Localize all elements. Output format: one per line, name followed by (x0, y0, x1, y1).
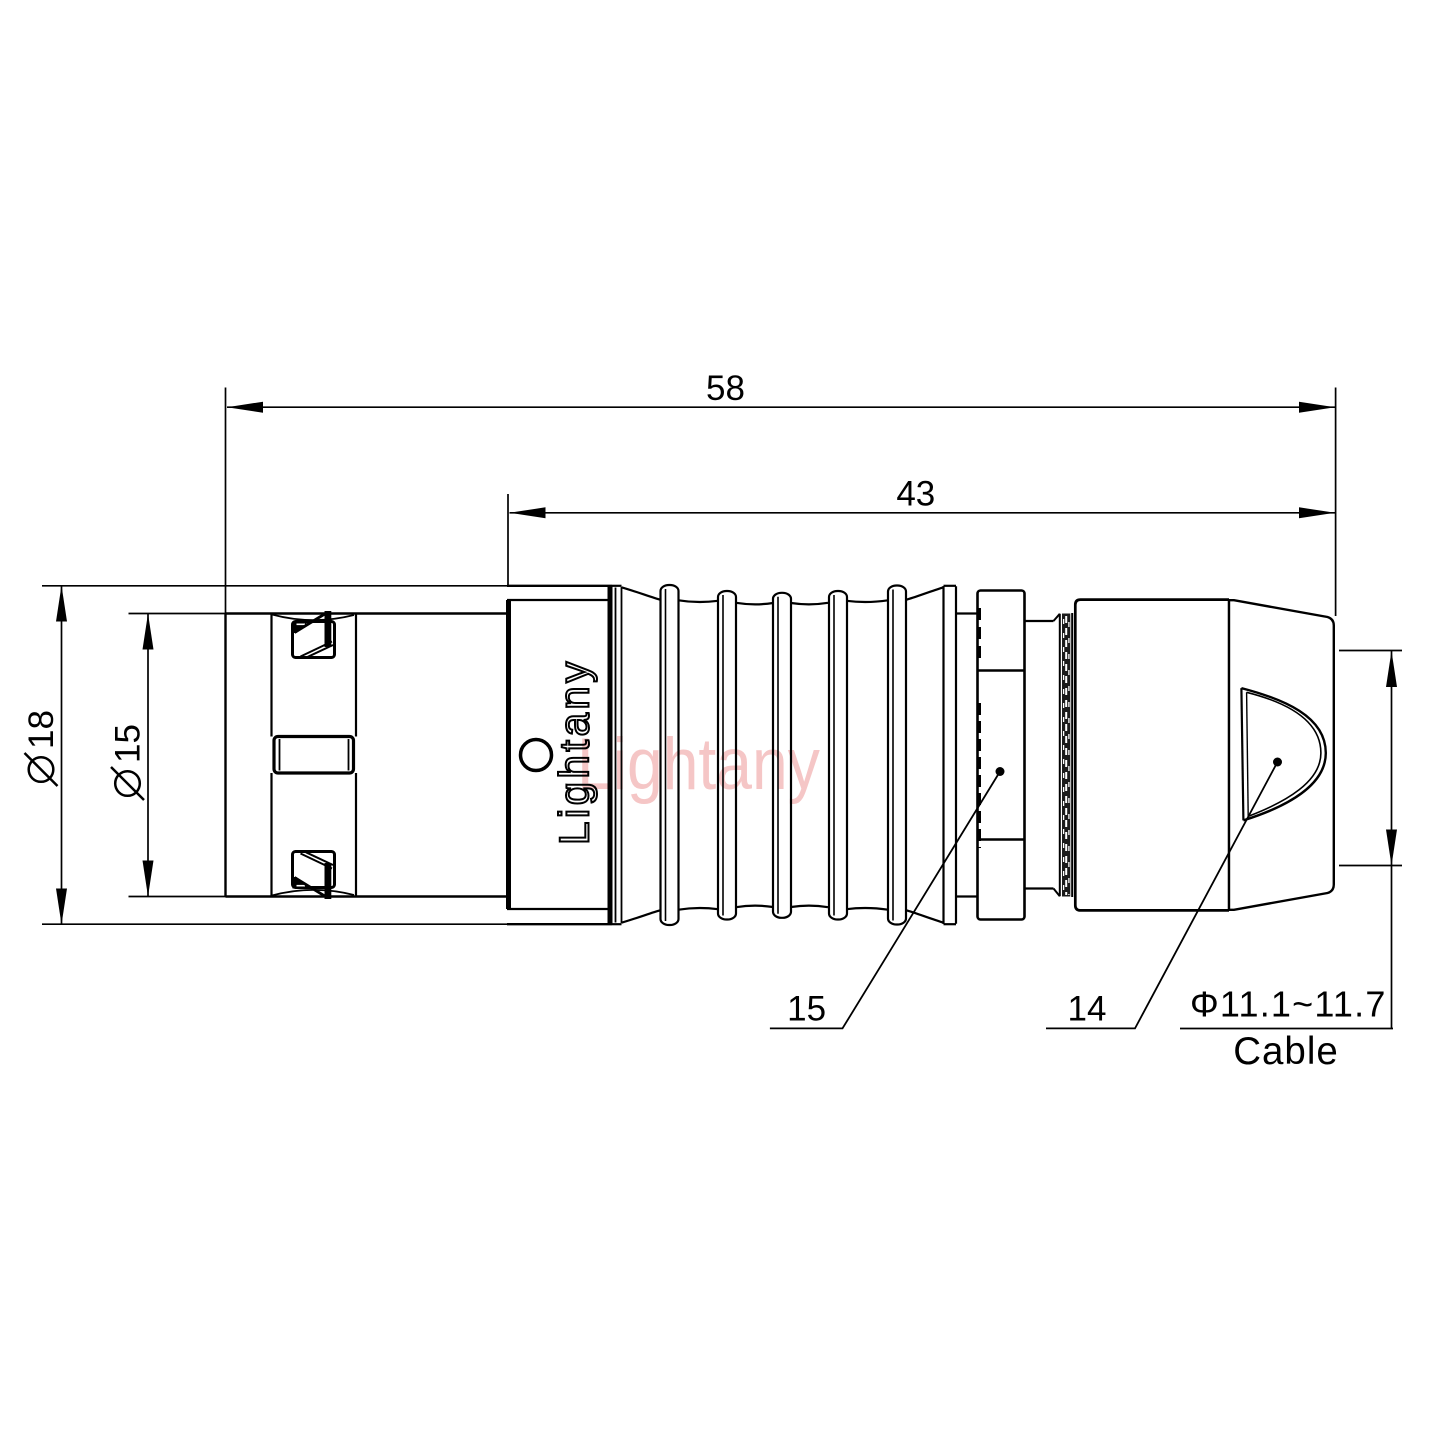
svg-text:Cable: Cable (1233, 1030, 1339, 1073)
svg-text:Lightany: Lightany (577, 723, 820, 805)
svg-text:14: 14 (1068, 990, 1107, 1029)
svg-text:18: 18 (22, 710, 61, 749)
svg-text:58: 58 (706, 369, 745, 408)
svg-text:15: 15 (787, 990, 826, 1029)
svg-text:43: 43 (896, 475, 935, 514)
svg-text:Φ11.1~11.7: Φ11.1~11.7 (1190, 984, 1387, 1025)
svg-text:15: 15 (109, 724, 148, 763)
